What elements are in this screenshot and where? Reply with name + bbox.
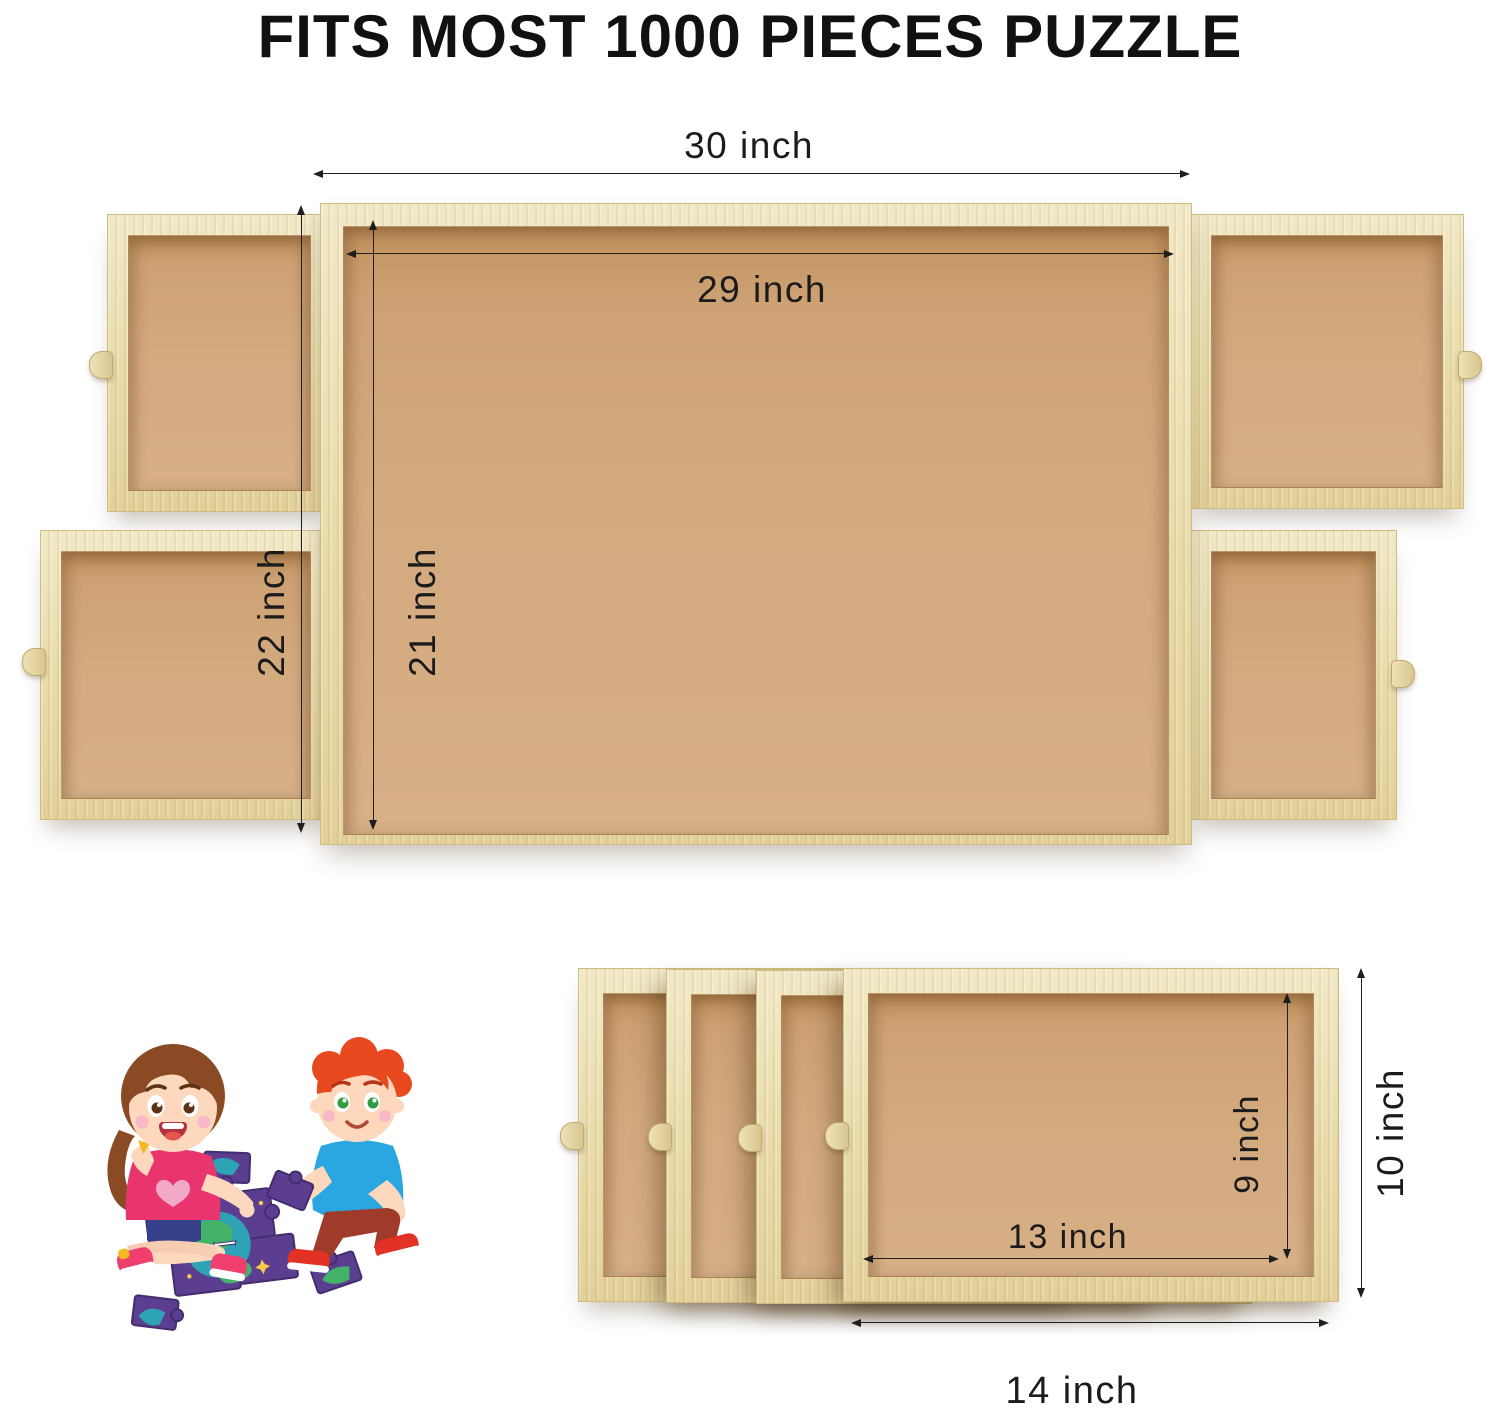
dim-arrow-board-inner-height	[373, 222, 374, 828]
drawer-knob	[89, 351, 113, 379]
drawer-knob	[738, 1124, 762, 1152]
page-title: FITS MOST 1000 PIECES PUZZLE	[0, 2, 1500, 71]
drawer-knob	[1391, 660, 1415, 688]
drawer-knob	[648, 1123, 672, 1151]
dim-label-drawer-outer-width: 14 inch	[922, 1371, 1222, 1411]
dim-arrow-board-outer-height	[301, 207, 302, 831]
dim-label-board-inner-width: 29 inch	[612, 270, 912, 310]
drawer-knob	[1458, 351, 1482, 379]
dim-label-drawer-inner-width: 13 inch	[918, 1217, 1218, 1257]
dim-arrow-board-inner-width	[348, 253, 1172, 254]
dim-label-drawer-inner-height: 9 inch	[1227, 994, 1267, 1294]
dim-arrow-drawer-outer-height	[1361, 970, 1362, 1296]
drawer-knob	[825, 1122, 849, 1150]
kids-illustration	[55, 1014, 475, 1346]
drawer-tray	[128, 235, 311, 491]
product-dimension-diagram: FITS MOST 1000 PIECES PUZZLE 30 inch 29 …	[0, 0, 1500, 1423]
dim-label-board-outer-height: 22 inch	[252, 462, 292, 762]
drawer-tray	[1211, 551, 1376, 799]
side-drawer-bottom-right	[1190, 530, 1397, 820]
dim-label-drawer-outer-height: 10 inch	[1371, 983, 1411, 1283]
board-surface	[343, 226, 1169, 835]
dim-arrow-drawer-inner-width	[865, 1258, 1277, 1259]
drawer-knob	[22, 648, 46, 676]
dim-label-board-outer-width: 30 inch	[599, 126, 899, 166]
dim-label-board-inner-height: 21 inch	[403, 462, 443, 762]
dim-arrow-board-outer-width	[315, 173, 1188, 174]
side-drawer-top-left	[107, 214, 332, 512]
drawer-tray	[1211, 235, 1443, 488]
drawer-knob	[560, 1122, 584, 1150]
dim-arrow-drawer-inner-height	[1287, 995, 1288, 1257]
side-drawer-top-right	[1190, 214, 1464, 509]
dim-arrow-drawer-outer-width	[853, 1322, 1327, 1323]
